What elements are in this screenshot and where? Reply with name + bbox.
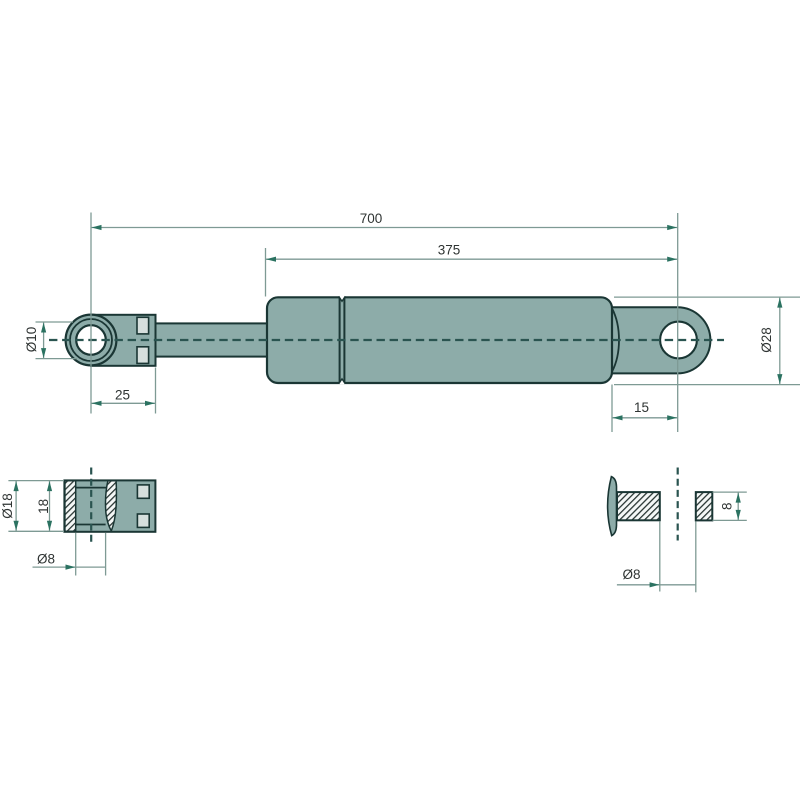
svg-text:15: 15 (634, 400, 649, 415)
svg-text:700: 700 (360, 211, 383, 226)
svg-text:25: 25 (115, 388, 130, 403)
svg-text:Ø8: Ø8 (622, 567, 640, 582)
svg-text:18: 18 (36, 499, 51, 514)
svg-text:8: 8 (720, 503, 735, 511)
svg-text:Ø28: Ø28 (759, 327, 774, 353)
svg-text:Ø18: Ø18 (0, 493, 15, 519)
svg-text:Ø10: Ø10 (24, 327, 39, 353)
svg-text:Ø8: Ø8 (37, 552, 55, 567)
svg-text:375: 375 (438, 243, 461, 258)
